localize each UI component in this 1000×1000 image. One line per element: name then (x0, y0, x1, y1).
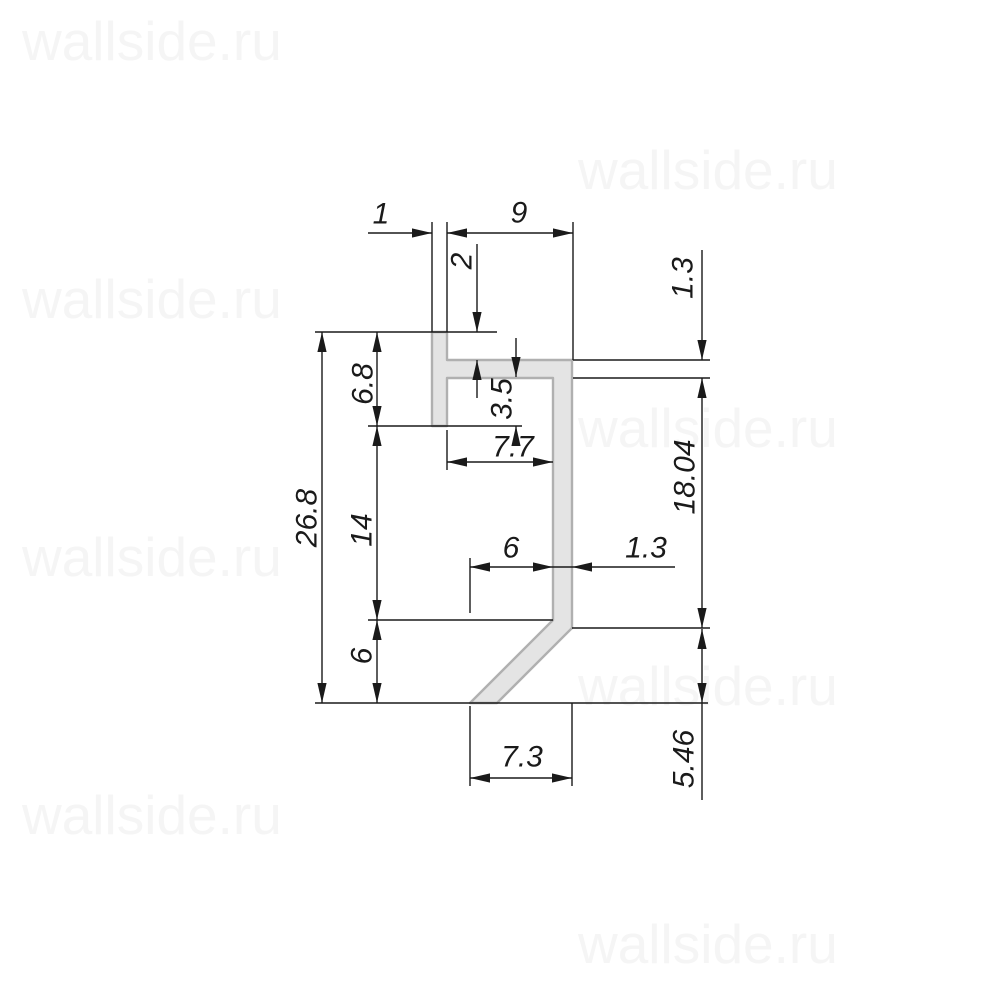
dim-bottom-width: 7.3 (501, 741, 543, 774)
watermark-text: wallside.ru (21, 784, 282, 846)
dimension-arrowhead (533, 562, 553, 571)
dimension-arrowhead (470, 562, 490, 571)
dimension-arrowhead (412, 228, 432, 237)
dimension-arrowhead (470, 773, 490, 782)
dimension-arrowhead (372, 406, 381, 426)
dimension-arrowhead (697, 629, 706, 649)
watermark-text: wallside.ru (21, 10, 282, 72)
dimension-arrowhead (697, 608, 706, 628)
dimension-arrowhead (447, 228, 467, 237)
watermark-text: wallside.ru (577, 913, 838, 975)
watermark-text: wallside.ru (577, 397, 838, 459)
technical-drawing: wallside.ruwallside.ruwallside.ruwallsid… (0, 0, 1000, 1000)
watermarks: wallside.ruwallside.ruwallside.ruwallsid… (21, 10, 838, 975)
watermark-text: wallside.ru (577, 655, 838, 717)
dim-wall-thickness: 1.3 (625, 532, 667, 565)
dim-wall-height: 18.04 (669, 439, 702, 514)
dimension-arrowhead (372, 600, 381, 620)
watermark-text: wallside.ru (577, 139, 838, 201)
dim-upper-segment: 6.8 (347, 363, 380, 405)
dimension-arrowhead (552, 773, 572, 782)
watermark-text: wallside.ru (21, 268, 282, 330)
dimension-arrowhead (372, 426, 381, 446)
dim-inner-gap: 7.7 (492, 431, 535, 464)
dimension-arrowhead (533, 457, 553, 466)
dimension-arrowhead (317, 332, 326, 352)
dimension-arrowhead (317, 683, 326, 703)
dim-flange-thickness: 1.3 (667, 257, 700, 299)
dimension-arrowhead (372, 683, 381, 703)
dim-lip-depth: 3.5 (486, 378, 519, 420)
dim-top-width: 9 (511, 197, 528, 230)
dim-foot-height: 5.46 (668, 729, 701, 788)
dimension-arrowhead (472, 312, 481, 332)
dimension-arrowhead (447, 457, 467, 466)
dimension-arrowhead (372, 620, 381, 640)
dimension-arrowhead (572, 562, 592, 571)
dimension-arrowhead (553, 228, 573, 237)
dimension-arrowhead (697, 340, 706, 360)
dimension-arrowhead (697, 378, 706, 398)
dim-lower-segment: 6 (346, 647, 379, 664)
dim-foot-offset: 6 (503, 532, 520, 565)
dim-total-height: 26.8 (291, 488, 324, 548)
dim-middle-segment: 14 (346, 513, 379, 546)
dim-flange-offset: 2 (446, 252, 479, 270)
drawing-page: wallside.ruwallside.ruwallside.ruwallsid… (0, 0, 1000, 1000)
dim-top-wall-thickness: 1 (373, 198, 390, 231)
watermark-text: wallside.ru (21, 526, 282, 588)
dimension-arrowhead (372, 332, 381, 352)
